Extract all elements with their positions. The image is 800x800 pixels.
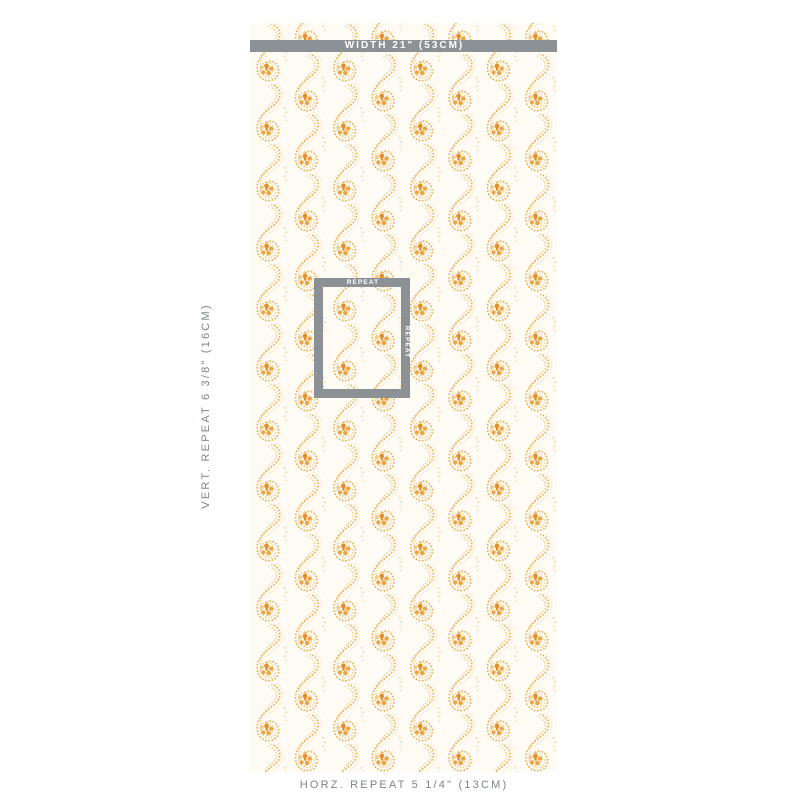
width-measure-bar: WIDTH 21" (53CM) xyxy=(250,40,557,52)
repeat-top-label: REPEAT xyxy=(347,280,379,287)
vertical-repeat-label: VERT. REPEAT 6 3/8" (16CM) xyxy=(200,303,212,508)
repeat-right-label: REPEAT xyxy=(403,326,410,358)
repeat-outline-box xyxy=(314,278,410,398)
horizontal-repeat-label: HORZ. REPEAT 5 1/4" (13CM) xyxy=(300,779,509,791)
wallpaper-measurement-diagram: WIDTH 21" (53CM) REPEAT REPEAT VERT. REP… xyxy=(0,0,800,800)
width-measure-label: WIDTH 21" (53CM) xyxy=(343,40,465,52)
